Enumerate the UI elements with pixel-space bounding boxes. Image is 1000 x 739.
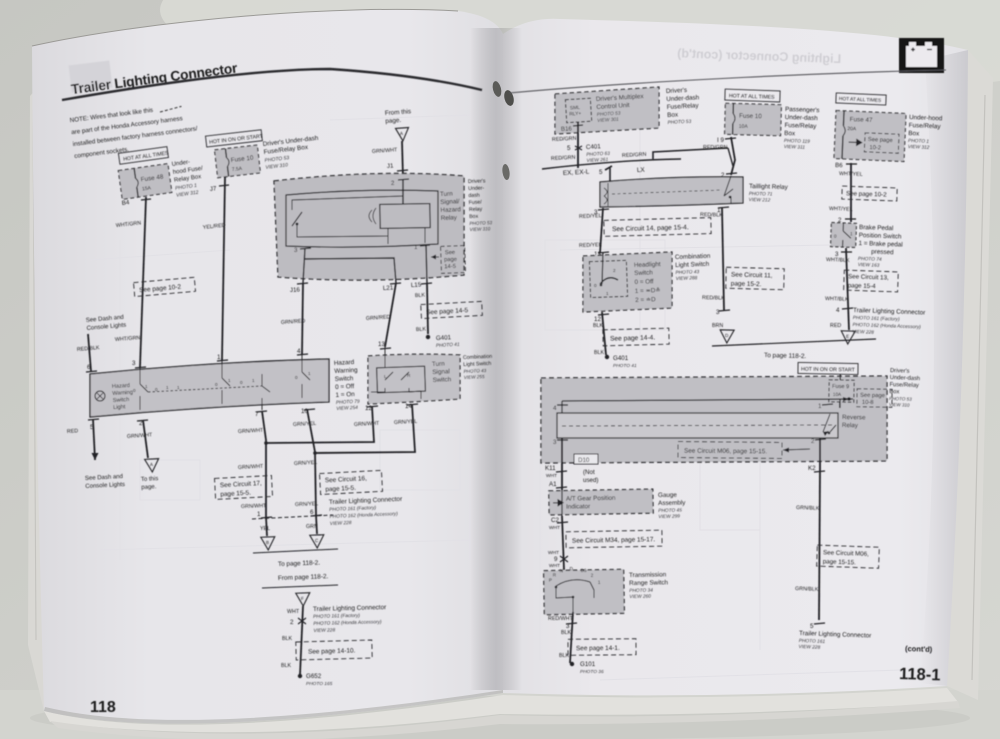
svg-text:PHOTO 71: PHOTO 71 <box>749 191 773 198</box>
svg-text:VIEW 312: VIEW 312 <box>908 144 930 151</box>
svg-text:1: 1 <box>308 371 311 376</box>
svg-text:RED/YEL: RED/YEL <box>579 213 602 220</box>
svg-text:BLK: BLK <box>561 630 571 636</box>
svg-text:Fuse 9: Fuse 9 <box>832 384 849 390</box>
svg-text:page 15-2.: page 15-2. <box>731 280 762 288</box>
svg-text:Reverse: Reverse <box>842 414 866 421</box>
svg-text:Taillight Relay: Taillight Relay <box>749 183 789 191</box>
svg-text:J7: J7 <box>209 185 217 193</box>
svg-text:PHOTO 41: PHOTO 41 <box>613 363 637 369</box>
svg-text:BLK: BLK <box>594 350 604 356</box>
svg-text:WHT: WHT <box>287 609 300 615</box>
svg-text:BRN: BRN <box>712 323 723 329</box>
svg-text:C401: C401 <box>586 143 602 151</box>
svg-text:VIEW 228: VIEW 228 <box>798 644 820 651</box>
svg-text:See page 14-4.: See page 14-4. <box>610 334 655 342</box>
svg-text:RED/GRN: RED/GRN <box>703 145 728 151</box>
svg-text:VIEW 212: VIEW 212 <box>749 197 771 204</box>
svg-text:E: E <box>846 334 849 339</box>
svg-text:PHOTO 63: PHOTO 63 <box>586 151 610 158</box>
svg-text:VIEW 228: VIEW 228 <box>852 329 874 336</box>
svg-text:EX, EX-L: EX, EX-L <box>563 169 590 177</box>
svg-text:118-1: 118-1 <box>899 665 941 684</box>
svg-text:Range Switch: Range Switch <box>629 579 668 587</box>
svg-text:A1: A1 <box>549 481 557 488</box>
svg-text:PHOTO 79: PHOTO 79 <box>336 399 360 406</box>
svg-text:RED: RED <box>67 428 79 435</box>
svg-text:0: 0 <box>240 380 243 385</box>
svg-text:VIEW 255: VIEW 255 <box>464 374 485 380</box>
svg-text:1: 1 <box>414 244 418 251</box>
svg-text:G401: G401 <box>613 355 629 362</box>
svg-text:PHOTO 41: PHOTO 41 <box>436 342 460 349</box>
svg-text:Relay: Relay <box>441 214 458 222</box>
svg-text:10A: 10A <box>739 124 749 130</box>
svg-text:See page: See page <box>868 137 893 144</box>
svg-text:K11: K11 <box>545 465 556 472</box>
svg-text:Hazard: Hazard <box>440 206 461 214</box>
svg-text:Light Switch: Light Switch <box>675 261 710 269</box>
svg-text:(cont'd): (cont'd) <box>905 644 933 654</box>
svg-text:3: 3 <box>294 247 298 254</box>
svg-text:K2: K2 <box>808 465 816 472</box>
svg-text:0: 0 <box>594 283 597 288</box>
svg-text:Under-dash: Under-dash <box>890 375 920 382</box>
svg-text:See page 14-10.: See page 14-10. <box>308 647 356 655</box>
svg-text:RED/BLK: RED/BLK <box>702 295 725 302</box>
svg-text:3: 3 <box>553 439 557 446</box>
svg-text:Fuse/Relay: Fuse/Relay <box>784 122 817 130</box>
svg-text:GRN/YEL: GRN/YEL <box>294 460 318 467</box>
svg-text:(Not: (Not <box>583 469 595 476</box>
svg-text:I 9: I 9 <box>717 137 724 144</box>
svg-text:1: 1 <box>252 378 255 383</box>
svg-text:0: 0 <box>215 382 218 387</box>
svg-text:VIEW 288: VIEW 288 <box>676 275 698 282</box>
svg-text:WHT: WHT <box>549 525 560 531</box>
svg-text:Hazard: Hazard <box>112 383 130 390</box>
svg-text:PHOTO 161: PHOTO 161 <box>799 638 826 645</box>
svg-text:Warning: Warning <box>334 367 358 375</box>
svg-text:A/T Gear Position: A/T Gear Position <box>566 495 616 503</box>
svg-text:VIEW 228: VIEW 228 <box>330 520 352 527</box>
svg-text:Indicator: Indicator <box>566 503 590 510</box>
svg-text:VIEW 310: VIEW 310 <box>470 226 491 232</box>
svg-text:VIEW 299: VIEW 299 <box>658 514 680 520</box>
svg-text:RED/WHT: RED/WHT <box>548 616 573 622</box>
svg-text:2: 2 <box>613 268 616 273</box>
svg-text:Under-dash: Under-dash <box>785 114 819 122</box>
svg-text:BLK: BLK <box>593 323 603 329</box>
svg-text:L15: L15 <box>411 281 422 289</box>
svg-text:1: 1 <box>606 291 609 296</box>
svg-text:13: 13 <box>378 341 385 348</box>
svg-text:PHOTO 119: PHOTO 119 <box>784 138 810 145</box>
svg-text:Headlight: Headlight <box>634 261 661 269</box>
svg-text:5: 5 <box>810 623 814 630</box>
svg-text:7.5A: 7.5A <box>232 166 244 173</box>
svg-text:Driver's: Driver's <box>890 368 910 375</box>
svg-text:YEL: YEL <box>260 526 270 532</box>
svg-text:PHOTO 53: PHOTO 53 <box>889 396 912 402</box>
svg-text:1 = On: 1 = On <box>335 391 355 399</box>
svg-text:Signal: Signal <box>432 368 450 376</box>
svg-text:HOT IN ON OR START: HOT IN ON OR START <box>801 367 856 374</box>
svg-text:6: 6 <box>310 509 314 516</box>
svg-text:1: 1 <box>818 403 822 410</box>
svg-text:WHT: WHT <box>549 563 560 569</box>
svg-text:See Circuit 13,: See Circuit 13, <box>848 273 889 281</box>
svg-text:1 = ≖D≗: 1 = ≖D≗ <box>635 287 661 295</box>
svg-text:B4: B4 <box>121 199 130 207</box>
svg-text:B6: B6 <box>835 162 843 169</box>
svg-text:20A: 20A <box>847 126 857 132</box>
svg-text:10-2: 10-2 <box>869 145 881 152</box>
svg-text:dash: dash <box>468 193 480 199</box>
svg-text:See page 10-2: See page 10-2 <box>846 190 887 198</box>
svg-text:Relay: Relay <box>469 207 483 213</box>
svg-text:BLK: BLK <box>282 636 292 642</box>
svg-text:6: 6 <box>87 364 91 371</box>
svg-text:WHT/BLK: WHT/BLK <box>825 296 849 303</box>
svg-text:Assembly: Assembly <box>658 500 686 507</box>
svg-text:0 = Off: 0 = Off <box>335 383 355 391</box>
svg-text:RED/BLK: RED/BLK <box>700 212 723 219</box>
svg-text:Hazard: Hazard <box>334 359 355 367</box>
svg-text:Driver's: Driver's <box>666 87 687 95</box>
svg-text:page.: page. <box>385 117 401 125</box>
svg-text:VIEW 228: VIEW 228 <box>313 627 335 634</box>
svg-text:1: 1 <box>217 354 221 361</box>
svg-text:PHOTO 43: PHOTO 43 <box>463 368 486 374</box>
svg-text:BLK: BLK <box>281 663 291 669</box>
svg-text:L21: L21 <box>383 284 394 292</box>
svg-text:4: 4 <box>297 348 301 355</box>
svg-text:1: 1 <box>228 378 231 383</box>
svg-text:GRN/YEL: GRN/YEL <box>293 421 317 428</box>
svg-text:Signal/: Signal/ <box>440 198 460 206</box>
svg-text:BLK: BLK <box>559 653 569 659</box>
svg-text:P: P <box>549 578 552 583</box>
svg-text:J1: J1 <box>387 163 395 170</box>
svg-text:Fuse/Relay: Fuse/Relay <box>889 382 919 389</box>
svg-text:pressed: pressed <box>871 248 894 256</box>
svg-text:See: See <box>445 250 456 256</box>
svg-text:VIEW 163: VIEW 163 <box>858 262 880 269</box>
svg-text:Combination: Combination <box>463 354 492 361</box>
svg-text:To page 118-2.: To page 118-2. <box>764 352 807 360</box>
svg-text:1: 1 <box>177 385 180 390</box>
svg-text:Box: Box <box>784 130 796 137</box>
svg-text:1: 1 <box>145 384 148 389</box>
svg-text:2 = ≐D: 2 = ≐D <box>635 296 656 304</box>
svg-text:PHOTO 161 (Factory): PHOTO 161 (Factory) <box>313 613 360 620</box>
svg-text:BLK: BLK <box>416 326 427 333</box>
svg-text:page.: page. <box>141 484 157 491</box>
svg-text:See Circuit 11,: See Circuit 11, <box>731 271 773 279</box>
svg-text:Switch: Switch <box>335 375 354 383</box>
svg-text:RED: RED <box>830 323 841 329</box>
svg-text:used): used) <box>583 477 598 484</box>
svg-text:0 = Off: 0 = Off <box>634 278 653 286</box>
svg-text:1: 1 <box>166 385 169 390</box>
svg-text:G401: G401 <box>436 334 452 342</box>
svg-text:See page: See page <box>860 393 885 399</box>
svg-text:GRN/BLK: GRN/BLK <box>795 586 819 593</box>
svg-text:D10: D10 <box>578 457 590 464</box>
svg-text:PHOTO 165: PHOTO 165 <box>306 681 333 687</box>
svg-text:LX: LX <box>637 167 646 174</box>
svg-text:Switch: Switch <box>432 376 451 384</box>
svg-text:D3: D3 <box>581 568 587 573</box>
svg-text:page 15-15.: page 15-15. <box>823 558 857 566</box>
svg-text:Under-: Under- <box>468 185 484 192</box>
svg-text:VIEW 310: VIEW 310 <box>889 402 910 408</box>
svg-text:See Circuit M34, page 15-17.: See Circuit M34, page 15-17. <box>572 536 655 544</box>
svg-text:SML: SML <box>570 105 581 112</box>
svg-text:B16: B16 <box>561 125 573 133</box>
svg-text:PHOTO 43: PHOTO 43 <box>675 269 699 276</box>
svg-text:Fuse 10: Fuse 10 <box>739 113 762 121</box>
svg-text:PHOTO 1: PHOTO 1 <box>908 138 930 145</box>
svg-text:Box: Box <box>667 111 679 119</box>
svg-text:Switch: Switch <box>113 397 130 404</box>
svg-text:Box: Box <box>889 389 899 395</box>
svg-text:G101: G101 <box>580 661 596 668</box>
svg-text:PHOTO 74: PHOTO 74 <box>858 256 882 263</box>
svg-text:Gauge: Gauge <box>658 492 678 499</box>
svg-text:Brake Pedal: Brake Pedal <box>859 224 894 232</box>
svg-text:2: 2 <box>811 438 815 445</box>
svg-text:Fuse/: Fuse/ <box>469 200 483 206</box>
svg-text:9: 9 <box>554 556 558 563</box>
svg-text:0: 0 <box>133 388 136 393</box>
svg-text:PHOTO 34: PHOTO 34 <box>629 588 653 594</box>
svg-text:0: 0 <box>295 375 298 380</box>
svg-text:F: F <box>301 596 304 601</box>
svg-text:14-5: 14-5 <box>444 264 456 270</box>
svg-text:Fuse/Relay: Fuse/Relay <box>909 122 942 130</box>
svg-text:See Circuit M06, page 15-15.: See Circuit M06, page 15-15. <box>684 448 767 456</box>
svg-text:PHOTO 36: PHOTO 36 <box>580 669 604 675</box>
svg-text:Transmission: Transmission <box>629 571 667 579</box>
svg-text:VIEW 311: VIEW 311 <box>784 144 806 151</box>
svg-text:GRN/WHT: GRN/WHT <box>241 503 267 510</box>
svg-text:5: 5 <box>567 145 571 152</box>
svg-text:118: 118 <box>90 699 116 716</box>
svg-text:4: 4 <box>836 307 840 314</box>
svg-text:0: 0 <box>155 387 158 392</box>
svg-text:BLK: BLK <box>415 292 426 299</box>
svg-text:Warning: Warning <box>112 390 133 397</box>
svg-text:WHT: WHT <box>546 473 557 479</box>
svg-text:N: N <box>560 568 563 573</box>
svg-text:Box: Box <box>469 214 479 220</box>
svg-text:WHT/YEL: WHT/YEL <box>839 171 863 178</box>
svg-text:To page 118-2.: To page 118-2. <box>278 560 321 568</box>
svg-text:Passenger's: Passenger's <box>785 106 820 114</box>
svg-text:WHT/BLK: WHT/BLK <box>826 257 850 264</box>
svg-text:Under-hood: Under-hood <box>909 114 943 122</box>
svg-text:Light: Light <box>113 404 126 411</box>
svg-text:PHOTO 53: PHOTO 53 <box>469 220 492 226</box>
svg-text:RED/YEL: RED/YEL <box>579 242 602 249</box>
svg-text:Combination: Combination <box>675 253 711 261</box>
svg-text:Driver's: Driver's <box>468 178 486 185</box>
svg-text:2: 2 <box>290 619 294 626</box>
svg-text:4: 4 <box>553 405 557 412</box>
svg-text:G652: G652 <box>306 673 322 680</box>
svg-text:To this: To this <box>141 476 159 483</box>
svg-text:page 15-4: page 15-4 <box>848 282 877 290</box>
svg-text:VIEW 260: VIEW 260 <box>629 594 651 600</box>
svg-text:10-8: 10-8 <box>862 400 874 406</box>
svg-text:GRN/YEL: GRN/YEL <box>295 501 319 508</box>
svg-text:Switch: Switch <box>634 269 653 277</box>
svg-text:RLY+: RLY+ <box>569 111 581 118</box>
svg-text:page: page <box>444 257 457 263</box>
svg-text:Box: Box <box>908 130 920 138</box>
svg-text:Fuse 47: Fuse 47 <box>850 116 874 124</box>
svg-text:J16: J16 <box>290 286 301 294</box>
svg-text:12: 12 <box>594 316 601 323</box>
svg-text:Turn: Turn <box>440 191 453 198</box>
svg-text:1: 1 <box>257 511 261 518</box>
svg-text:PHOTO 53: PHOTO 53 <box>667 119 691 126</box>
svg-text:Turn: Turn <box>432 360 446 368</box>
svg-text:B: B <box>266 540 269 545</box>
svg-text:3: 3 <box>132 360 136 367</box>
svg-text:5: 5 <box>599 169 603 176</box>
svg-text:3: 3 <box>716 309 720 316</box>
svg-text:Light Switch: Light Switch <box>463 361 491 368</box>
svg-text:See page 14-1.: See page 14-1. <box>576 645 620 652</box>
svg-text:WHT/YEL: WHT/YEL <box>829 206 853 213</box>
svg-text:GRN/BLK: GRN/BLK <box>796 505 820 512</box>
svg-text:10A: 10A <box>833 392 842 397</box>
svg-text:PHOTO 45: PHOTO 45 <box>658 508 682 514</box>
svg-text:Relay: Relay <box>842 422 859 429</box>
svg-text:VIEW 254: VIEW 254 <box>336 405 358 412</box>
